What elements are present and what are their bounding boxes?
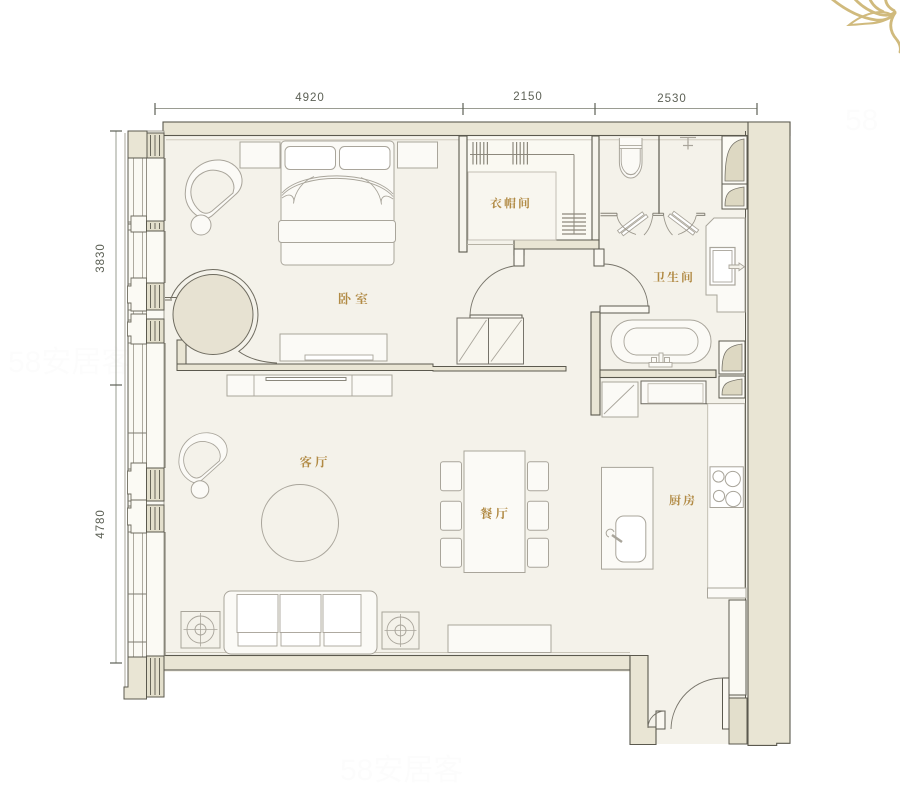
svg-text:4780: 4780 (95, 509, 107, 539)
svg-text:58安居客: 58安居客 (8, 346, 131, 379)
svg-text:2150: 2150 (513, 91, 543, 103)
svg-text:58安居客: 58安居客 (340, 754, 463, 787)
svg-text:58: 58 (845, 104, 878, 137)
svg-text:4920: 4920 (295, 92, 325, 104)
svg-text:3830: 3830 (95, 243, 107, 273)
svg-text:2530: 2530 (657, 93, 687, 105)
